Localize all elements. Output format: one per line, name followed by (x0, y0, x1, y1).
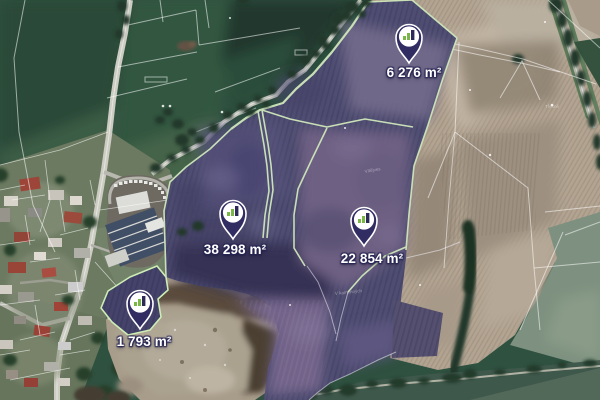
svg-text:Třešně: Třešně (545, 104, 560, 109)
